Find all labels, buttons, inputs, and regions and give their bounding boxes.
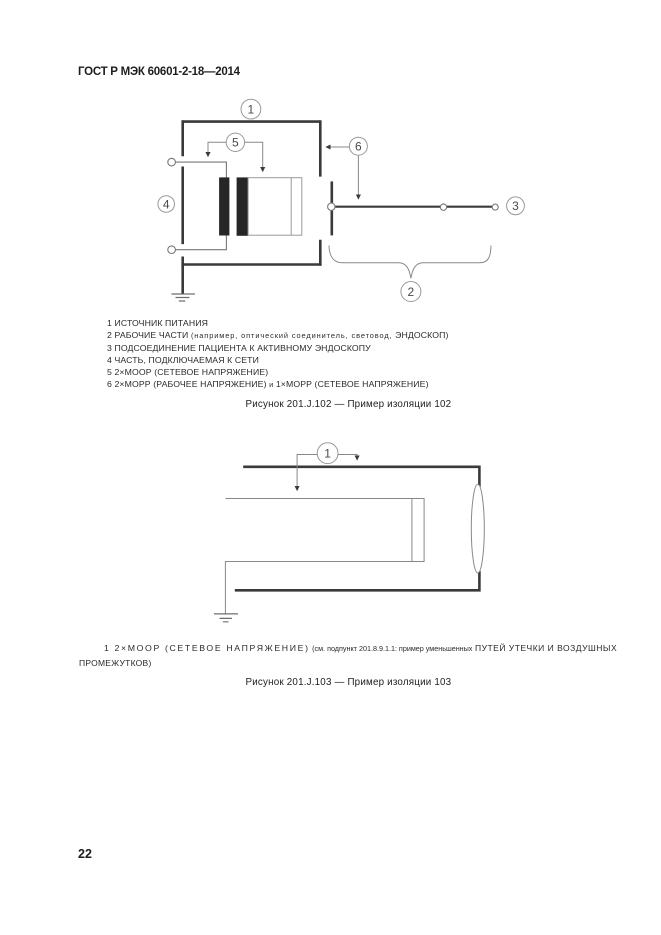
svg-text:3: 3: [512, 199, 519, 213]
svg-text:1: 1: [248, 102, 255, 116]
svg-text:4: 4: [163, 197, 170, 211]
svg-text:5: 5: [232, 136, 239, 150]
svg-text:1: 1: [324, 447, 331, 461]
svg-text:2: 2: [408, 285, 415, 299]
svg-text:6: 6: [355, 140, 362, 154]
